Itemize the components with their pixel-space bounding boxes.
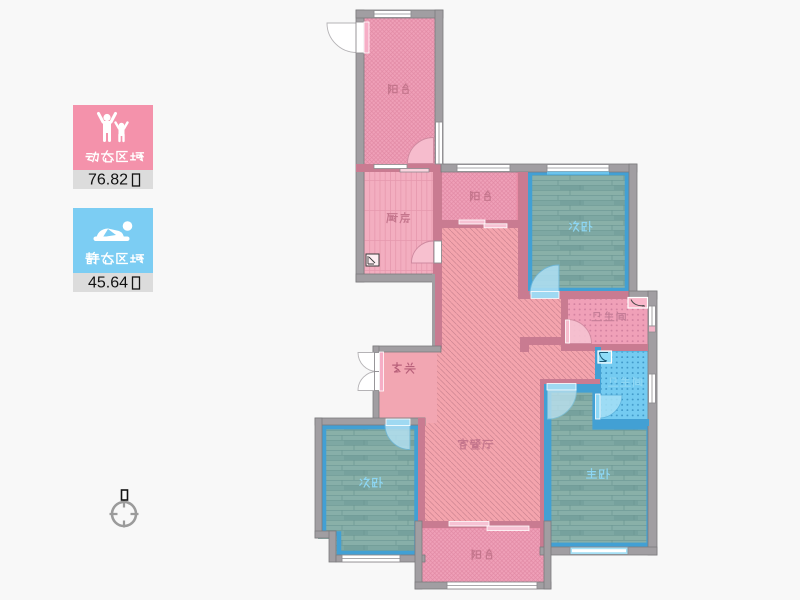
svg-text:76.82: 76.82 xyxy=(88,172,128,189)
svg-text:45.64: 45.64 xyxy=(88,275,128,292)
